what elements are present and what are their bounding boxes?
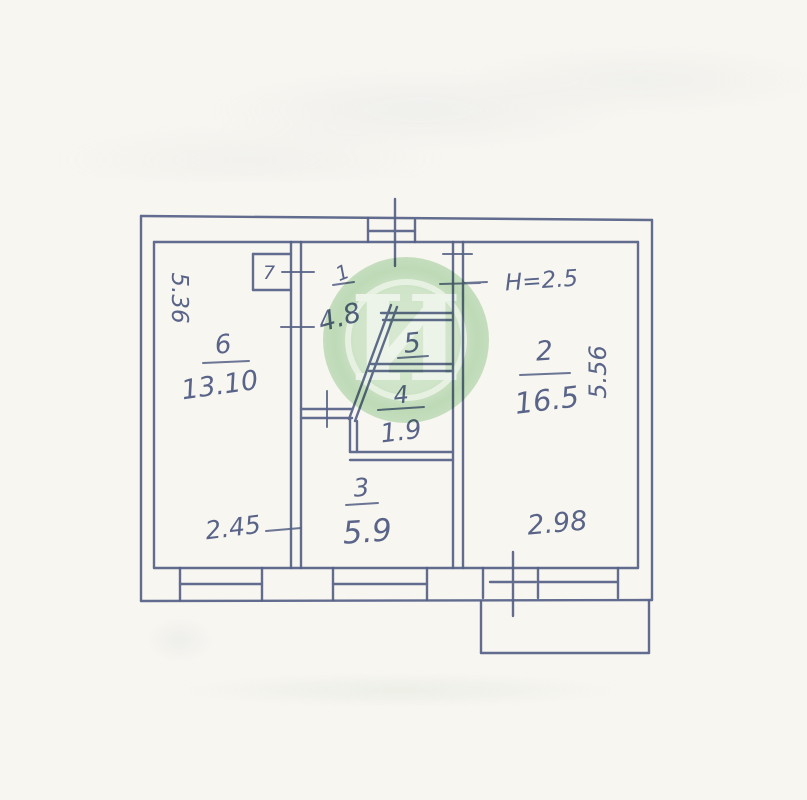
room3-number: 3 bbox=[352, 472, 370, 502]
room1-area: 4.8 bbox=[315, 297, 365, 339]
dim-bottom-left: 2.45 bbox=[204, 510, 263, 546]
dim-left-side: 5.36 bbox=[166, 272, 192, 323]
room4-number: 4 bbox=[392, 380, 410, 409]
room7-number: 7 bbox=[263, 262, 275, 284]
dim-right-side: 5.56 bbox=[584, 345, 612, 398]
room1-number: 1 bbox=[332, 259, 353, 286]
scanned-floor-plan: И bbox=[0, 0, 807, 800]
room3-area: 5.9 bbox=[341, 512, 393, 551]
room2-area: 16.5 bbox=[513, 379, 581, 421]
balcony-outline bbox=[481, 601, 649, 653]
room4-area: 1.9 bbox=[379, 415, 424, 450]
room6-area: 13.10 bbox=[179, 365, 260, 406]
dim-bottom-right: 2.98 bbox=[526, 505, 589, 541]
floor-plan-drawing: 6 13.10 2 16.5 3 5.9 4 1.9 5 1 4.8 7 2.4… bbox=[0, 0, 807, 800]
entrance-doorway bbox=[368, 199, 415, 266]
room-labels: 6 13.10 2 16.5 3 5.9 4 1.9 5 1 4.8 7 bbox=[179, 259, 581, 552]
room2-number: 2 bbox=[535, 335, 554, 367]
ceiling-height-note: Н=2.5 bbox=[504, 265, 579, 296]
room5-number: 5 bbox=[402, 327, 422, 360]
windows bbox=[180, 552, 618, 616]
room6-number: 6 bbox=[213, 329, 233, 361]
